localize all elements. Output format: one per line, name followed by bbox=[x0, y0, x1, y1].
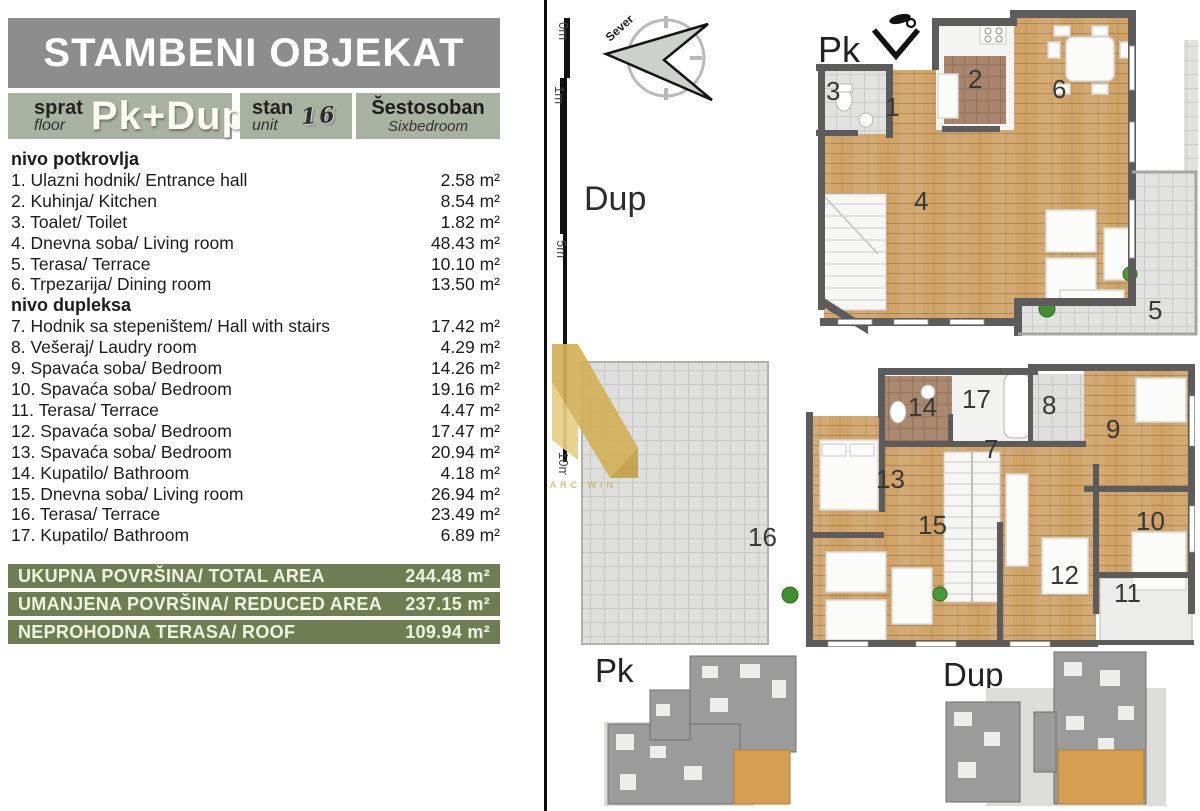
room-row: 6. Trpezarija/ Dining room13.50 m² bbox=[11, 274, 500, 295]
page-title: STAMBENI OBJEKAT bbox=[8, 18, 500, 88]
room-number: 6 bbox=[1052, 74, 1066, 104]
summary-row-roof: NEPROHODNA TERASA/ ROOF109.94 m² bbox=[8, 620, 500, 644]
room-number: 7 bbox=[984, 434, 998, 464]
room-number: 1 bbox=[885, 92, 899, 122]
room-row: 8. Vešeraj/ Laudry room4.29 m² bbox=[11, 337, 500, 358]
floor-label-sr: sprat bbox=[34, 98, 83, 118]
north-arrow-icon: Sever bbox=[602, 8, 722, 106]
entrance-chevron-icon bbox=[874, 30, 918, 56]
watermark-logo: ARCIWIN bbox=[542, 330, 660, 492]
room-number: 13 bbox=[876, 464, 905, 494]
room-row: 10. Spavaća soba/ Bedroom19.16 m² bbox=[11, 379, 500, 400]
floor-value: Pk+Dup bbox=[91, 94, 247, 139]
room-row: 15. Dnevna soba/ Living room26.94 m² bbox=[11, 484, 500, 505]
room-row: 12. Spavaća soba/ Bedroom17.47 m² bbox=[11, 421, 500, 442]
floor-label-en: floor bbox=[34, 118, 83, 134]
section-heading: nivo potkrovlja bbox=[11, 149, 500, 170]
pk-balcony-strip bbox=[1184, 40, 1198, 172]
section-heading: nivo dupleksa bbox=[11, 295, 500, 316]
dup-floor-plan: 7 8 9 10 11 12 13 14 15 16 17 bbox=[576, 356, 1200, 648]
room-row: 2. Kuhinja/ Kitchen8.54 m² bbox=[11, 191, 500, 212]
watermark-text: ARCIWIN bbox=[550, 480, 617, 490]
toilet bbox=[890, 401, 906, 423]
pk-floor-plan: Pk bbox=[808, 4, 1200, 348]
room-number: 11 bbox=[1114, 578, 1141, 608]
room-row: 9. Spavaća soba/ Bedroom14.26 m² bbox=[11, 358, 500, 379]
room-row: 4. Dnevna soba/ Living room48.43 m² bbox=[11, 233, 500, 254]
room-row: 16. Terasa/ Terrace23.49 m² bbox=[11, 504, 500, 525]
pk-plan-label: Pk bbox=[818, 29, 861, 70]
unit-label-en: unit bbox=[252, 118, 293, 134]
room-number: 14 bbox=[908, 392, 937, 422]
mini-pk-label: Pk bbox=[595, 652, 634, 689]
info-row: sprat floor Pk+Dup stan unit 16 Šestosob… bbox=[8, 93, 500, 139]
plant-icon bbox=[782, 587, 798, 603]
room-number: 12 bbox=[1050, 560, 1079, 590]
rooms-type-box: Šestosoban Sixbedroom bbox=[356, 93, 500, 139]
room-number: 9 bbox=[1106, 414, 1120, 444]
room-number: 16 bbox=[748, 522, 777, 552]
room-number: 5 bbox=[1148, 295, 1162, 325]
room-row: 11. Terasa/ Terrace4.47 m² bbox=[11, 400, 500, 421]
mini-plan-dup: Dup bbox=[938, 646, 1173, 809]
stairs bbox=[824, 194, 886, 310]
room-row: 3. Toalet/ Toilet1.82 m² bbox=[11, 212, 500, 233]
unit-highlight bbox=[1058, 750, 1144, 804]
scale-5m: 5m bbox=[554, 240, 569, 258]
summary-row-total: UKUPNA POVRŠINA/ TOTAL AREA244.48 m² bbox=[8, 564, 500, 588]
floor-info-box: sprat floor Pk+Dup bbox=[8, 93, 232, 139]
room-number: 8 bbox=[1042, 390, 1056, 420]
room-number: 10 bbox=[1136, 506, 1165, 536]
floorplan-sheet: STAMBENI OBJEKAT sprat floor Pk+Dup stan… bbox=[0, 0, 1200, 811]
dup-plan-label: Dup bbox=[584, 180, 646, 219]
mini-dup-label: Dup bbox=[943, 656, 1004, 693]
plant-icon bbox=[933, 587, 947, 601]
room-list: nivo potkrovlja 1. Ulazni hodnik/ Entran… bbox=[11, 149, 500, 546]
scale-1m: 1m bbox=[552, 86, 567, 104]
mini-plan-pk: Pk bbox=[590, 646, 820, 809]
unit-number: 16 bbox=[301, 102, 339, 130]
summary: UKUPNA POVRŠINA/ TOTAL AREA244.48 m² UMA… bbox=[8, 564, 500, 648]
room-number: 2 bbox=[968, 64, 982, 94]
room-row: 5. Terasa/ Terrace10.10 m² bbox=[11, 254, 500, 275]
room-number: 15 bbox=[918, 510, 947, 540]
scale-0m: 0m bbox=[556, 22, 571, 40]
rooms-type-en: Sixbedroom bbox=[388, 119, 468, 135]
unit-label-sr: stan bbox=[252, 98, 293, 118]
dup-room-8 bbox=[1032, 374, 1084, 444]
room-row: 13. Spavaća soba/ Bedroom20.94 m² bbox=[11, 442, 500, 463]
room-row: 7. Hodnik sa stepeništem/ Hall with stai… bbox=[11, 316, 500, 337]
room-number: 3 bbox=[826, 76, 840, 106]
summary-row-reduced: UMANJENA POVRŠINA/ REDUCED AREA237.15 m² bbox=[8, 592, 500, 616]
stairs bbox=[944, 452, 1000, 602]
room-row: 14. Kupatilo/ Bathroom4.18 m² bbox=[11, 463, 500, 484]
bathtub bbox=[1004, 374, 1030, 438]
rooms-type-sr: Šestosoban bbox=[371, 98, 484, 119]
key-icon bbox=[888, 12, 915, 27]
room-row: 1. Ulazni hodnik/ Entrance hall2.58 m² bbox=[11, 170, 500, 191]
room-number: 4 bbox=[914, 186, 928, 216]
unit-info-box: stan unit 16 bbox=[240, 93, 352, 139]
room-row: 17. Kupatilo/ Bathroom6.89 m² bbox=[11, 525, 500, 546]
unit-highlight bbox=[734, 750, 790, 804]
room-number: 17 bbox=[962, 384, 991, 414]
